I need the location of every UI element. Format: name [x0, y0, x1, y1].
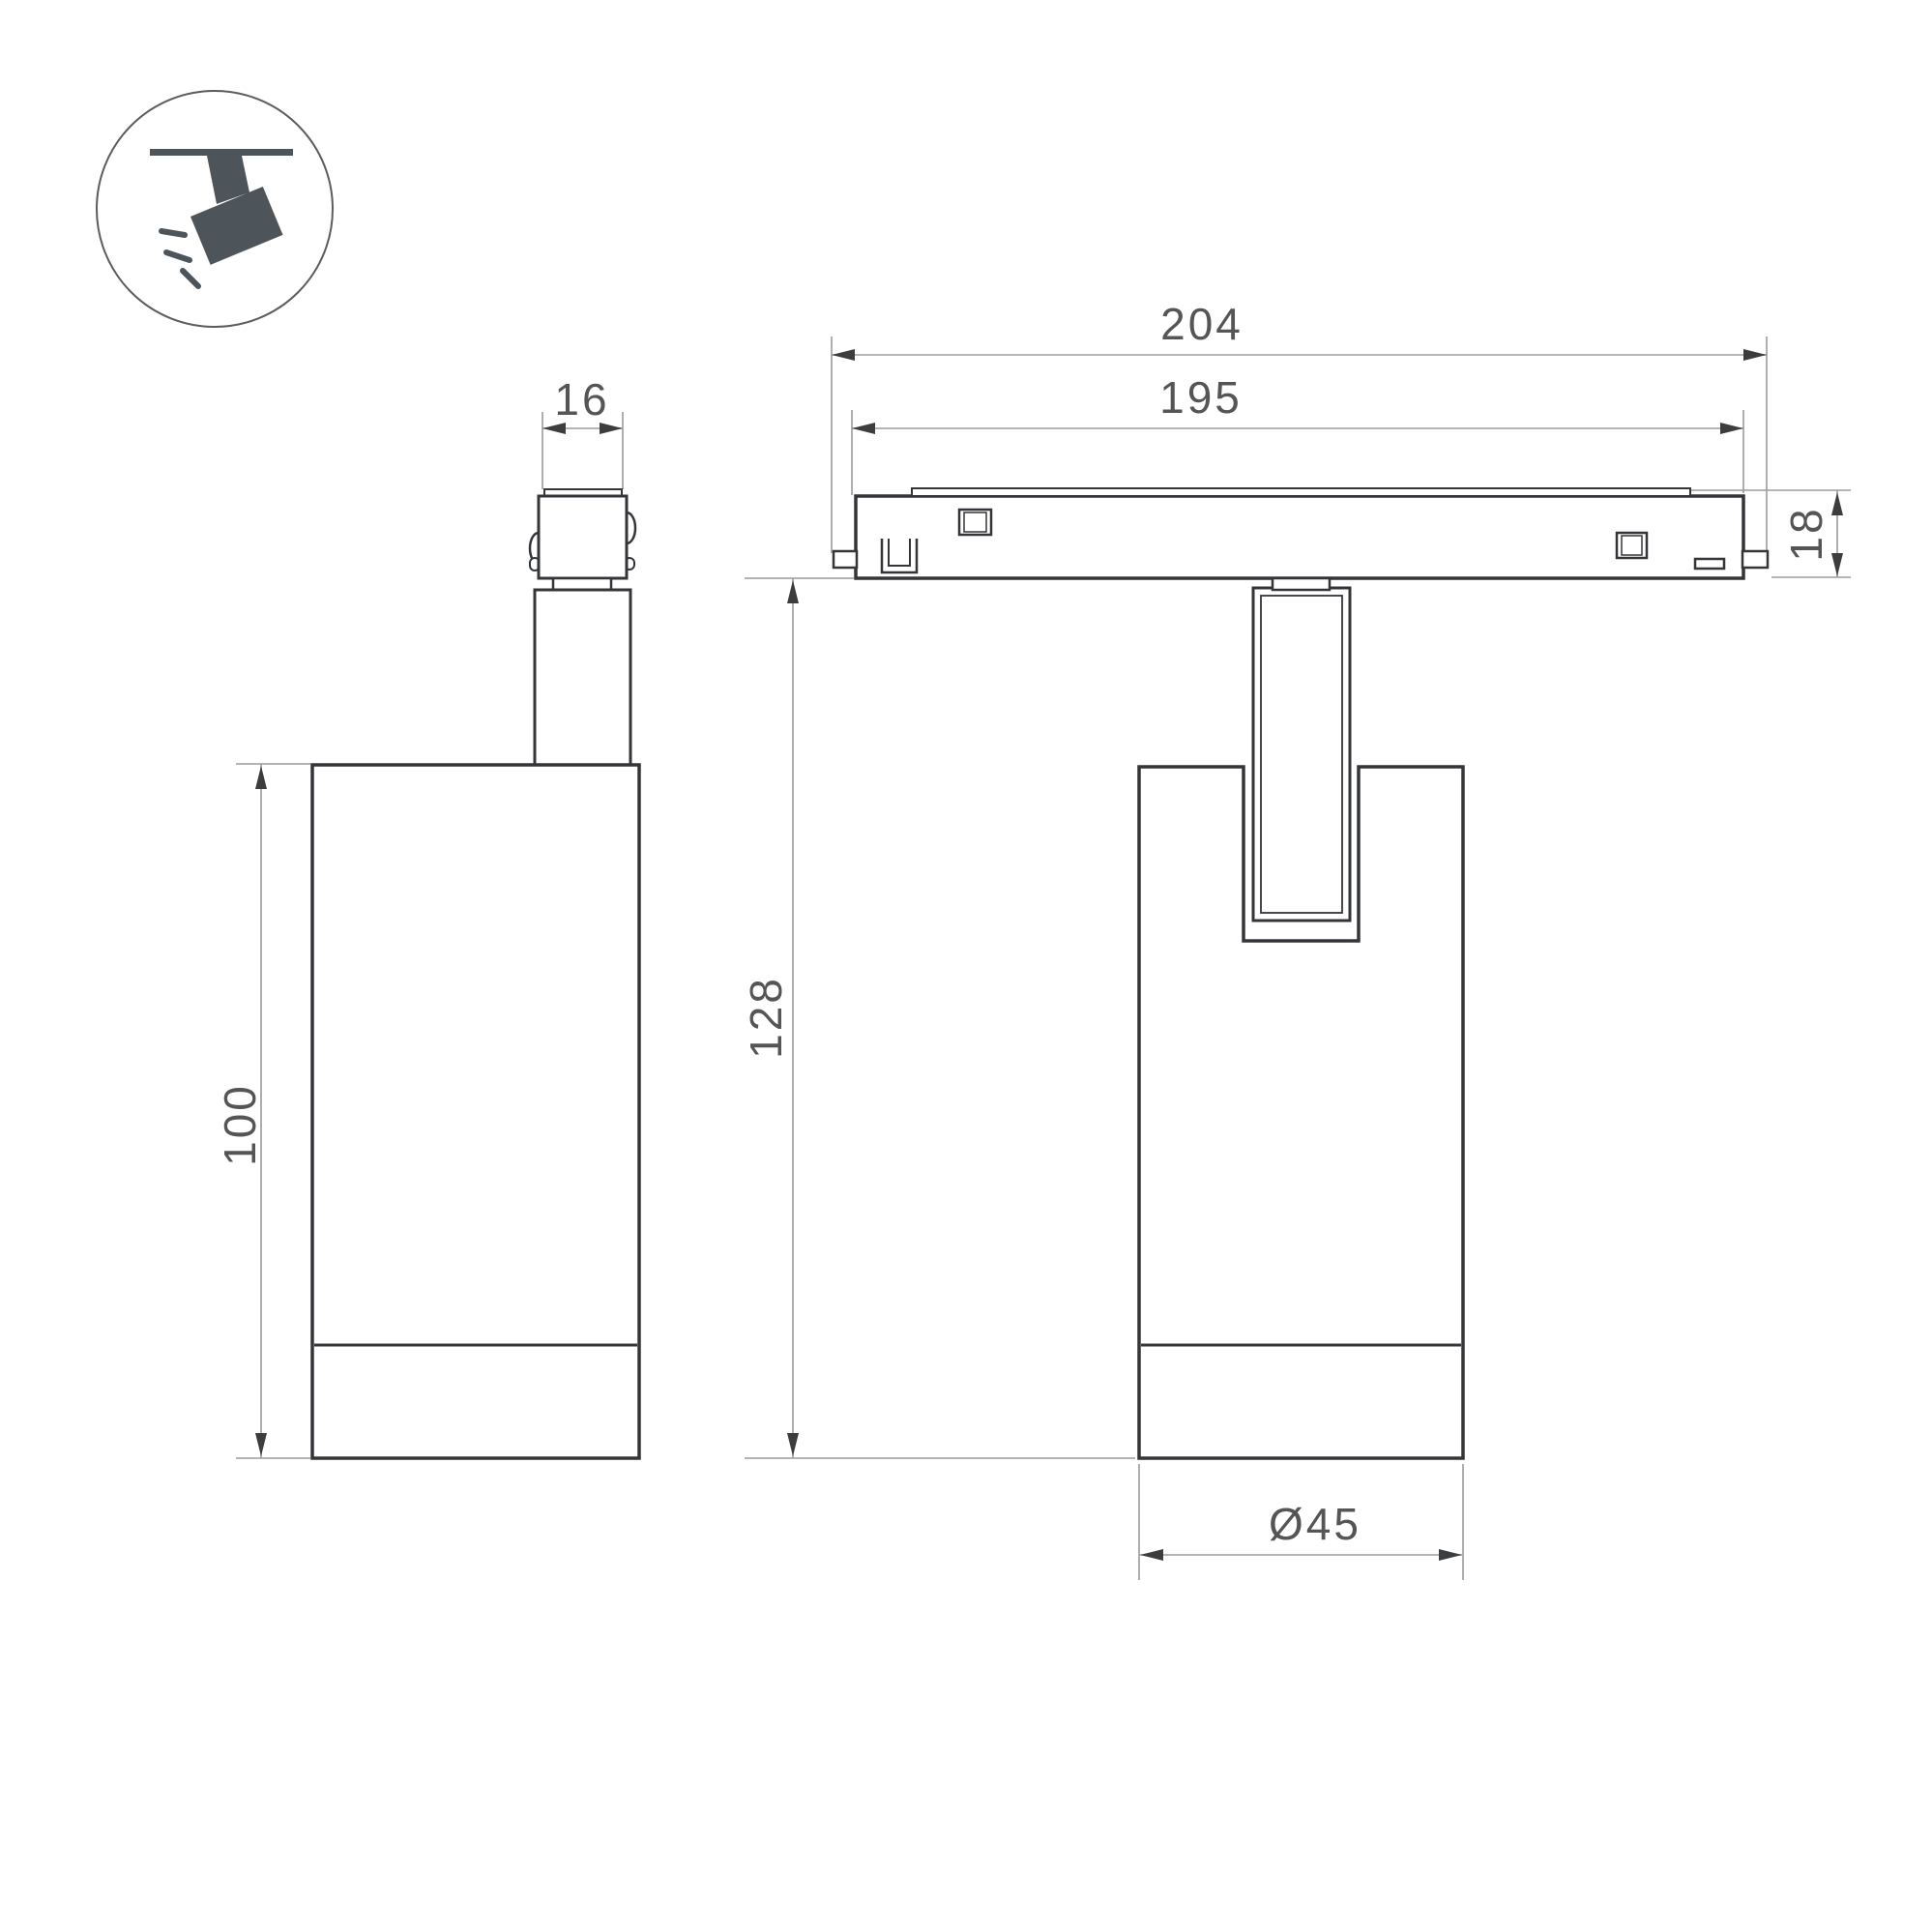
- side-view: [312, 489, 639, 1458]
- dim-100-arrow-bottom: [255, 1433, 267, 1456]
- dim-195-label: 195: [1159, 372, 1243, 423]
- lamp-body-side: [312, 765, 639, 1458]
- dim-overall-height: [745, 578, 1135, 1458]
- track-top-strip: [912, 488, 1690, 496]
- dim-204-arrow-left: [832, 349, 855, 361]
- technical-drawing: 16 204 195 18 128 100 Ø45: [0, 0, 1932, 1932]
- stem-front: [1253, 588, 1350, 921]
- dim-18-label: 18: [1781, 506, 1831, 561]
- dim-track-inner: [852, 410, 1743, 495]
- adapter-box-side: [539, 496, 627, 578]
- dim-128-arrow-top: [787, 580, 799, 603]
- dim-45-arrow-left: [1140, 1549, 1163, 1561]
- dim-18-arrow-top: [1831, 492, 1843, 515]
- dim-100-label: 100: [215, 1083, 265, 1166]
- dim-45-arrow-right: [1439, 1549, 1462, 1561]
- product-icon: [97, 91, 333, 327]
- dim-195-arrow-right: [1720, 423, 1743, 434]
- dim-45-label: Ø45: [1269, 1499, 1361, 1549]
- neck-side: [553, 578, 611, 590]
- dim-18-arrow-bottom: [1831, 553, 1843, 576]
- dim-128-label: 128: [741, 976, 791, 1059]
- dim-204-label: 204: [1160, 299, 1244, 349]
- dim-16-label: 16: [554, 374, 609, 424]
- front-view: [834, 488, 1768, 1458]
- dim-204-arrow-right: [1743, 349, 1767, 361]
- neck-front: [1273, 578, 1330, 590]
- stem-side: [535, 590, 630, 765]
- dim-195-arrow-left: [852, 423, 875, 434]
- icon-light-ray-1: [161, 231, 185, 235]
- icon-ceiling-track-bar: [150, 149, 293, 156]
- track-end-tab-left: [834, 551, 857, 568]
- dim-100-arrow-top: [255, 766, 267, 789]
- dim-128-arrow-bottom: [787, 1433, 799, 1456]
- drawing-svg: 16 204 195 18 128 100 Ø45: [0, 0, 1932, 1932]
- track-small-slot: [1695, 559, 1724, 569]
- track-end-tab-right: [1742, 551, 1768, 568]
